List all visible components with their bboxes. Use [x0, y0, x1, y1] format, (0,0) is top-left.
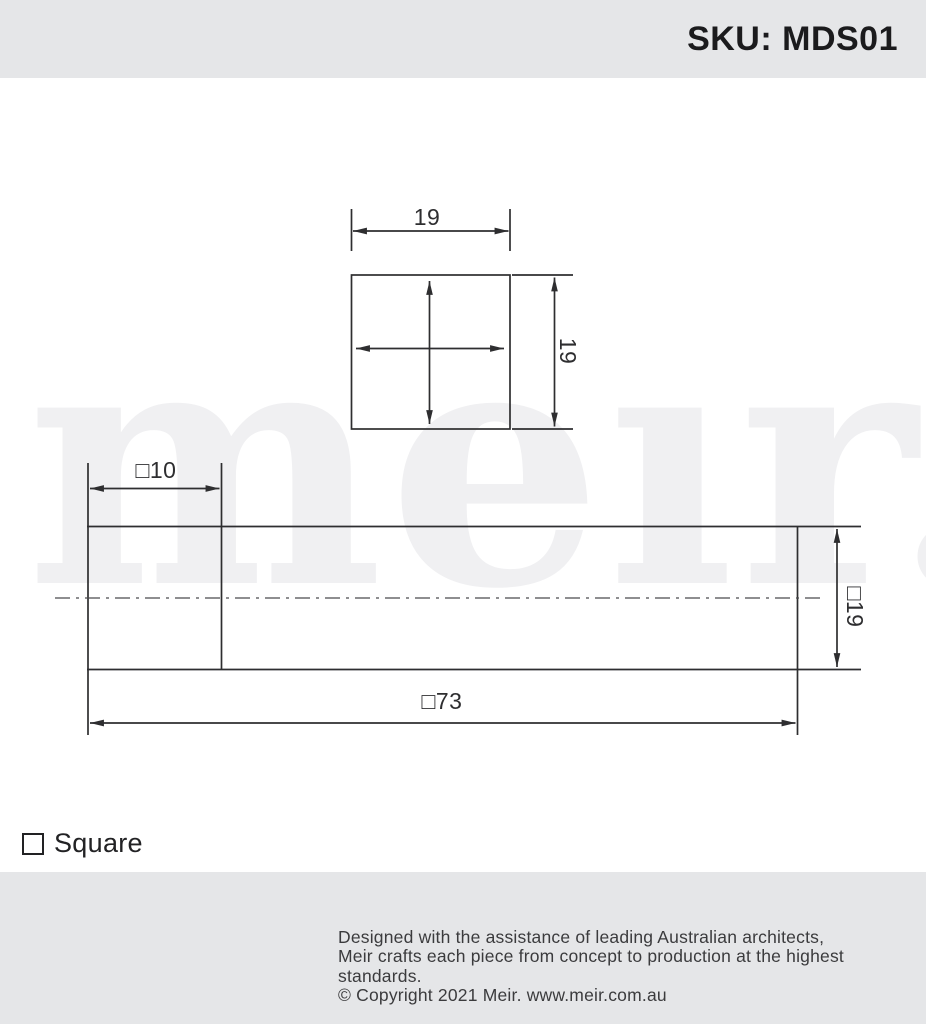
footer-line-2: Meir crafts each piece from concept to p…: [338, 947, 926, 986]
shape-legend-label: Square: [54, 828, 143, 858]
side-height-dim-label: □19: [842, 565, 868, 649]
side-length-dim-label: □73: [402, 688, 482, 714]
shape-legend: Square: [22, 828, 143, 858]
front-view-outline: [352, 275, 511, 429]
technical-drawing: [0, 0, 926, 1024]
front-width-dim-label: 19: [397, 204, 457, 230]
footer-line-1: Designed with the assistance of leading …: [338, 928, 926, 947]
front-view: [352, 209, 574, 429]
sku-label: SKU: MDS01: [687, 20, 898, 59]
spec-sheet-page: { "header": { "sku": "SKU: MDS01", "bg_c…: [0, 0, 926, 1024]
front-height-dim-label: 19: [555, 321, 581, 381]
square-icon: [22, 833, 44, 855]
footer-line-3: © Copyright 2021 Meir. www.meir.com.au: [338, 986, 926, 1005]
header-bar: SKU: MDS01: [0, 0, 926, 78]
footer-copy: Designed with the assistance of leading …: [338, 928, 926, 1006]
side-socket-dim-label: □10: [116, 457, 196, 483]
